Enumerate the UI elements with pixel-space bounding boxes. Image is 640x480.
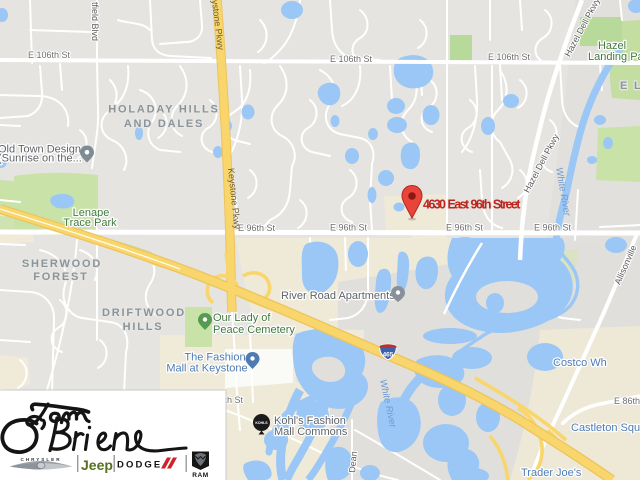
svg-text:AND DALES: AND DALES (124, 118, 204, 130)
svg-text:E 96th St: E 96th St (238, 223, 276, 233)
svg-text:465: 465 (383, 352, 394, 359)
svg-text:Our Lady of: Our Lady of (213, 312, 271, 324)
svg-text:DRIFTWOOD: DRIFTWOOD (102, 307, 186, 319)
svg-text:E 106th St: E 106th St (28, 50, 71, 60)
svg-text:E 106th St: E 106th St (330, 54, 373, 64)
svg-text:SHERWOOD: SHERWOOD (22, 258, 102, 270)
svg-text:HOLADAY HILLS: HOLADAY HILLS (108, 104, 219, 116)
svg-text:E 96th St: E 96th St (446, 223, 484, 233)
svg-text:4630 East 96th Street: 4630 East 96th Street (423, 198, 521, 212)
svg-text:FOREST: FOREST (33, 271, 88, 283)
svg-text:tfield Blvd: tfield Blvd (90, 2, 100, 41)
svg-text:Dean: Dean (347, 451, 359, 473)
svg-text:Landing Par: Landing Par (588, 51, 640, 63)
svg-text:Trace Park: Trace Park (63, 217, 117, 229)
svg-text:HILLS: HILLS (123, 321, 164, 333)
svg-text:(Sunrise on the...: (Sunrise on the... (0, 153, 82, 165)
svg-text:CHRYSLER: CHRYSLER (20, 457, 61, 462)
svg-text:River Road Apartments: River Road Apartments (281, 290, 395, 302)
svg-text:Mall Commons: Mall Commons (274, 426, 348, 438)
svg-text:E 106th St: E 106th St (488, 52, 531, 62)
svg-text:E 96th St: E 96th St (534, 223, 572, 233)
svg-text:DODGE: DODGE (117, 460, 162, 471)
svg-text:KOHLS: KOHLS (255, 421, 268, 425)
svg-text:Jeep: Jeep (81, 457, 113, 473)
svg-text:Trader Joe's: Trader Joe's (521, 467, 582, 479)
svg-text:E L: E L (620, 80, 640, 92)
svg-text:RAM: RAM (192, 472, 209, 479)
svg-text:E 96th St: E 96th St (330, 223, 368, 233)
svg-text:E 86th St: E 86th St (614, 396, 640, 406)
svg-text:Castleton Squa: Castleton Squa (571, 422, 640, 434)
svg-text:Mall at Keystone: Mall at Keystone (166, 363, 247, 375)
svg-text:Costco Wh: Costco Wh (553, 357, 607, 369)
svg-text:Peace Cemetery: Peace Cemetery (213, 324, 295, 336)
